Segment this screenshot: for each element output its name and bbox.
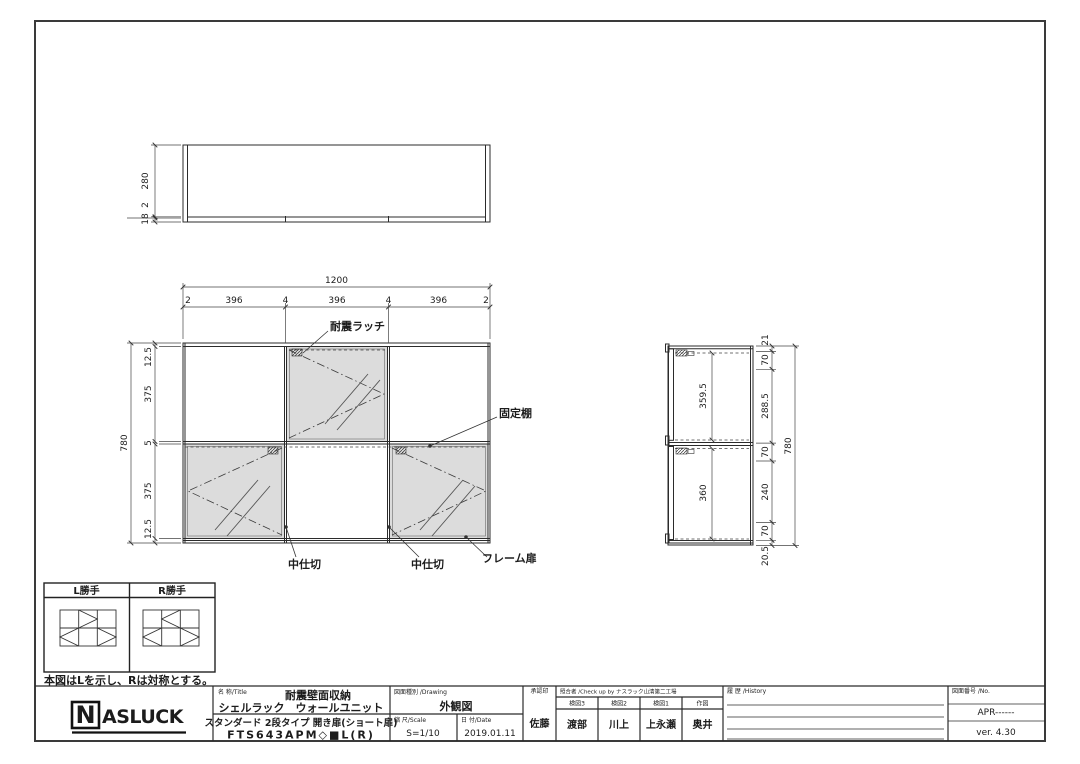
dim-s-seg6: 20.5: [761, 546, 771, 566]
handing-note: 本図はLを示し、Rは対称とする。: [44, 673, 213, 687]
check-col3-header: 作図: [696, 700, 708, 708]
dim-side-total: 780: [784, 437, 794, 454]
dim-s-seg1: 70: [761, 354, 771, 366]
dim-w-seg5: 396: [430, 296, 447, 306]
top-view: [183, 145, 490, 222]
front-view-dims-left: [127, 343, 181, 543]
top-view-dims: [127, 145, 181, 222]
check-col1-value: 川上: [608, 718, 629, 731]
check-col3-value: 奥井: [693, 718, 713, 731]
dim-plan-gap: 2: [141, 202, 151, 208]
dim-h-seg3: 375: [144, 482, 154, 499]
dim-s-seg3: 70: [761, 446, 771, 458]
name-line3: スタンダード 2段タイプ 開き扉(ショート扉): [205, 717, 398, 729]
approval-value: 佐藤: [529, 717, 551, 730]
drawing-type-value: 外観図: [439, 699, 473, 713]
dim-plan-bottom: 18: [141, 213, 151, 225]
dim-s-seg0: 21: [761, 334, 771, 345]
scale-value: S=1/10: [406, 729, 440, 739]
dim-plan-depth: 280: [141, 172, 151, 189]
dim-s-seg2: 288.5: [761, 393, 771, 419]
name-header: 名 称/Title: [218, 688, 247, 696]
check-col2-header: 検図1: [653, 700, 669, 708]
handing-table: [44, 583, 215, 672]
dim-inner-top: 359.5: [699, 383, 709, 409]
page-border: [35, 21, 1045, 741]
front-view-dims-top: [183, 283, 490, 343]
label-fixed-shelf: 固定棚: [499, 406, 532, 420]
handing-mini-l: [60, 610, 116, 646]
dim-w-seg1: 396: [225, 296, 242, 306]
date-value: 2019.01.11: [464, 729, 516, 739]
number-header: 図面番号 /No.: [952, 688, 990, 695]
logo-n: N: [75, 701, 95, 729]
number-value: APR------: [978, 708, 1015, 718]
handing-left-header: L勝手: [73, 584, 99, 597]
dim-h-seg2: 5: [144, 440, 154, 446]
label-partition-left: 中仕切: [288, 557, 321, 571]
drawing-sheet: 280 2 18: [0, 0, 1080, 764]
dim-s-seg5: 70: [761, 525, 771, 537]
drawing-type-header: 図面種別 /Drawing: [394, 688, 447, 696]
dim-inner-bottom: 360: [699, 484, 709, 501]
nasluck-logo: N ASLUCK: [72, 701, 186, 733]
side-view-structure: [666, 344, 754, 545]
dim-w-seg6: 2: [483, 296, 489, 306]
label-quake-latch: 耐震ラッチ: [330, 319, 385, 333]
dim-s-seg4: 240: [761, 483, 771, 500]
logo-rest: ASLUCK: [102, 706, 185, 728]
check-col1-header: 検図2: [611, 700, 627, 708]
dim-h-seg0: 12.5: [144, 347, 154, 367]
dim-w-seg2: 4: [283, 296, 289, 306]
check-header: 照合者 /Check up by ナスラック山清第二工場: [560, 688, 677, 696]
handing-mini-r: [143, 610, 199, 646]
dim-w-seg4: 4: [386, 296, 392, 306]
dim-h-seg4: 12.5: [144, 519, 154, 539]
approval-header: 承認印: [530, 687, 548, 695]
date-header: 日 付/Date: [461, 716, 492, 724]
scale-header: 縮 尺/Scale: [394, 716, 426, 724]
label-frame-door: フレーム扉: [482, 551, 537, 565]
check-col0-value: 渡部: [567, 718, 587, 731]
cad-canvas: 280 2 18: [0, 0, 1080, 764]
name-line2: シェルラック ウォールユニット: [219, 702, 384, 715]
name-line4: FTS643APM◇■L(R): [227, 729, 375, 742]
label-partition-right: 中仕切: [411, 557, 444, 571]
side-view-latches: [676, 350, 694, 454]
dim-width-total: 1200: [325, 276, 348, 286]
version-value: ver. 4.30: [976, 728, 1016, 738]
dim-h-seg1: 375: [144, 385, 154, 402]
handing-right-header: R勝手: [158, 584, 186, 597]
front-view-glass-doors: [185, 347, 488, 539]
dim-height-total: 780: [120, 434, 130, 451]
history-header: 履 歴 /History: [727, 688, 767, 695]
check-col2-value: 上永瀬: [646, 718, 676, 731]
dim-w-seg3: 396: [328, 296, 345, 306]
dim-w-seg0: 2: [185, 296, 191, 306]
name-line1: 耐震壁面収納: [285, 688, 351, 702]
check-col0-header: 検図3: [569, 700, 585, 708]
